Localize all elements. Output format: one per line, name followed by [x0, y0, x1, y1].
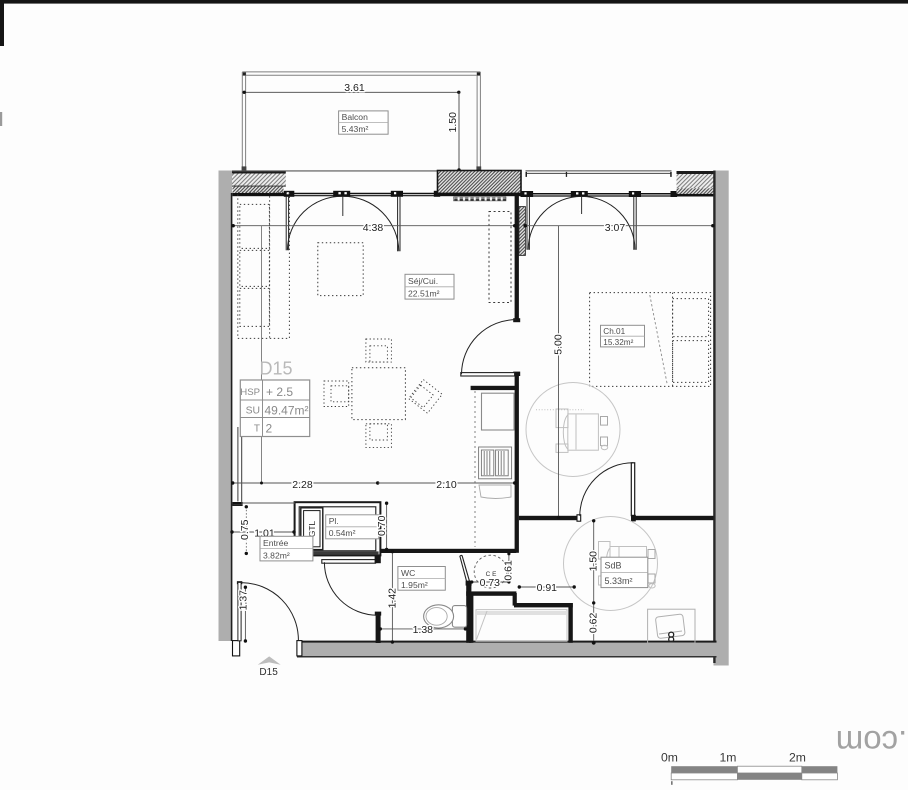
svg-text:2: 2 [266, 421, 273, 435]
svg-text:2.28: 2.28 [292, 479, 313, 491]
svg-text:.com: .com [836, 724, 908, 761]
svg-text:1.37: 1.37 [238, 590, 250, 611]
svg-text:Ch.01: Ch.01 [603, 327, 625, 336]
svg-text:2.10: 2.10 [436, 479, 457, 491]
svg-text:0.91: 0.91 [537, 582, 558, 594]
svg-text:0.62: 0.62 [588, 613, 600, 634]
svg-text:1m: 1m [720, 751, 737, 765]
svg-text:1.95m²: 1.95m² [401, 580, 428, 590]
svg-text:+ 2.5: + 2.5 [266, 385, 293, 399]
svg-text:Balcon: Balcon [342, 112, 368, 122]
svg-text:15.32m²: 15.32m² [603, 338, 633, 347]
svg-text:Pl.: Pl. [329, 516, 339, 526]
svg-text:3.07: 3.07 [605, 222, 626, 234]
svg-text:0.70: 0.70 [376, 515, 388, 536]
svg-text:0m: 0m [661, 751, 678, 765]
svg-text:3.82m²: 3.82m² [263, 550, 290, 560]
svg-text:SdB: SdB [605, 560, 622, 570]
svg-text:0.73: 0.73 [480, 577, 501, 589]
svg-text:0.61: 0.61 [502, 560, 514, 581]
svg-text:Séj/Cui.: Séj/Cui. [408, 276, 438, 286]
svg-text:T: T [254, 423, 260, 434]
svg-text:0.75: 0.75 [239, 519, 251, 540]
svg-text:WC: WC [401, 568, 415, 578]
svg-text:1.50: 1.50 [447, 112, 459, 133]
svg-text:D15: D15 [260, 359, 293, 379]
svg-text:HSP: HSP [240, 387, 260, 398]
svg-text:SU: SU [246, 405, 260, 416]
svg-text:4.38: 4.38 [363, 222, 384, 234]
svg-text:0.54m²: 0.54m² [329, 528, 356, 538]
svg-text:2m: 2m [789, 751, 806, 765]
svg-text:1.50: 1.50 [588, 551, 600, 572]
svg-text:49.47m²: 49.47m² [265, 403, 309, 417]
svg-text:5.00: 5.00 [552, 334, 564, 355]
svg-text:1.38: 1.38 [413, 624, 434, 636]
svg-text:Entrée: Entrée [263, 538, 289, 548]
svg-text:22.51m²: 22.51m² [408, 289, 440, 299]
svg-text:1.42: 1.42 [386, 588, 398, 609]
svg-text:3.61: 3.61 [344, 82, 365, 94]
svg-text:D15: D15 [259, 667, 278, 678]
svg-text:5.43m²: 5.43m² [342, 124, 369, 134]
svg-text:5.33m²: 5.33m² [605, 576, 633, 586]
svg-text:GTL: GTL [307, 521, 317, 538]
